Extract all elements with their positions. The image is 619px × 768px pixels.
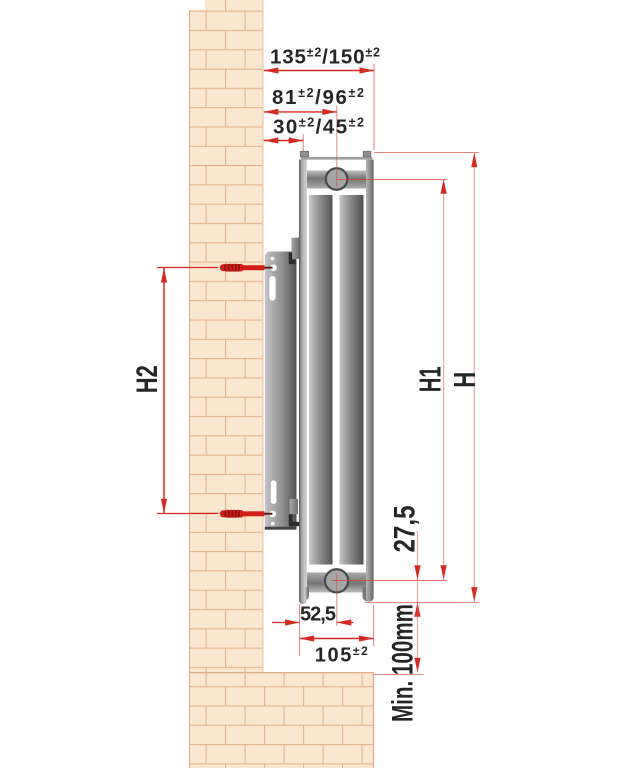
svg-text:H2: H2 (131, 365, 164, 393)
svg-text:27,5: 27,5 (389, 506, 422, 553)
svg-text:52,5: 52,5 (300, 604, 336, 626)
svg-text:135±2/150±2: 135±2/150±2 (270, 45, 380, 68)
svg-text:H1: H1 (413, 366, 448, 392)
svg-text:Min. 100mm: Min. 100mm (387, 604, 420, 722)
svg-text:H: H (447, 372, 482, 388)
